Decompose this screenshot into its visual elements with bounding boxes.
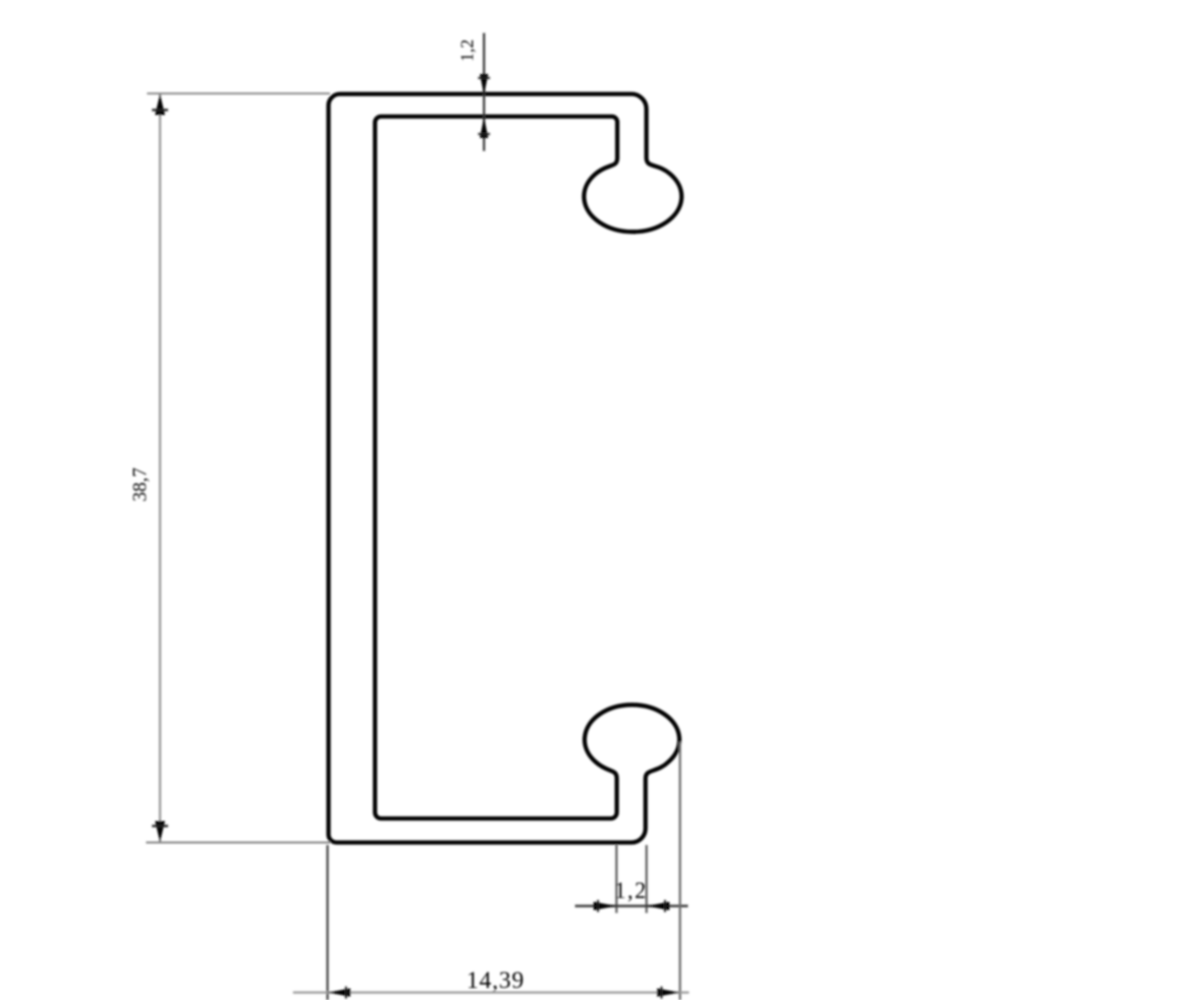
svg-text:38,7: 38,7 (130, 467, 151, 501)
svg-text:1,2: 1,2 (457, 39, 477, 62)
svg-text:1,2: 1,2 (614, 878, 647, 903)
svg-text:14,39: 14,39 (467, 968, 525, 994)
